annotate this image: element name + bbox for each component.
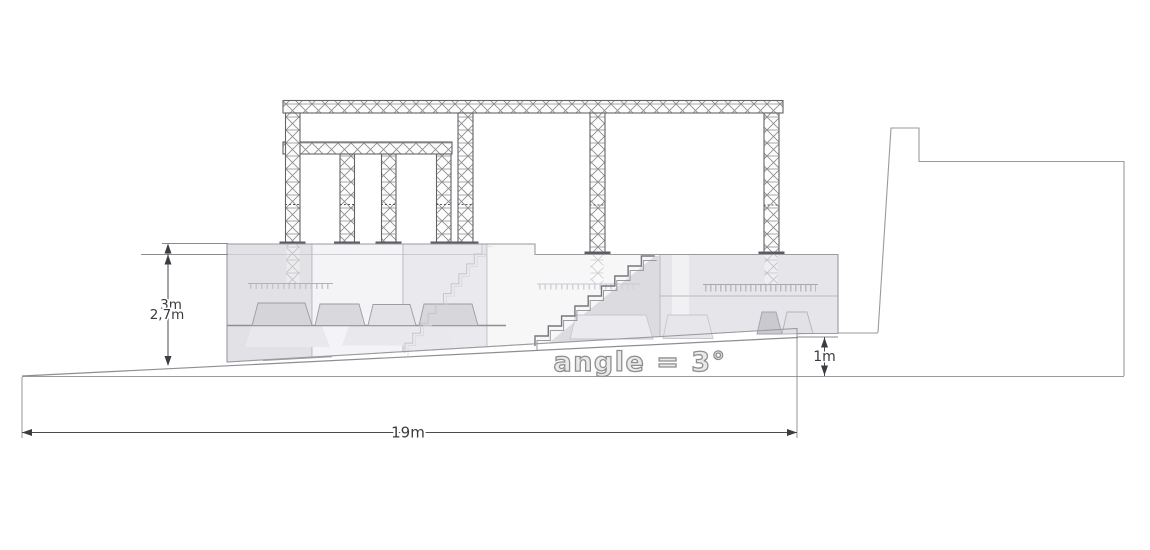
dimension-height: 3m 2,7m xyxy=(141,244,228,367)
angle-label: angle = 3° xyxy=(553,347,726,378)
arrow-up-icon xyxy=(165,255,172,265)
truss-column xyxy=(382,154,397,244)
arrow-down-icon xyxy=(165,356,172,366)
lower-truss xyxy=(283,142,452,154)
truss-column xyxy=(340,154,355,244)
arrow-down-icon xyxy=(821,366,828,376)
elevation-drawing-canvas: 3m 2,7m 1m 19m angle = 3° xyxy=(0,0,1150,550)
label-step-height: 1m xyxy=(813,349,836,365)
elevation-drawing: 3m 2,7m 1m 19m angle = 3° xyxy=(0,0,1150,550)
arrow-left-icon xyxy=(22,429,32,436)
label-total-length: 19m xyxy=(391,424,425,442)
truss-column xyxy=(286,113,301,244)
arrow-up-icon xyxy=(821,338,828,348)
stage-platform xyxy=(227,244,838,362)
dimension-step: 1m xyxy=(797,337,838,376)
roof-truss xyxy=(283,101,783,114)
label-stage-height: 2,7m xyxy=(150,307,185,323)
truss-column xyxy=(458,113,473,244)
truss-splice-joints xyxy=(285,205,780,206)
arrow-up-icon xyxy=(165,244,172,254)
truss-column xyxy=(590,113,605,254)
venue-wall xyxy=(878,128,1124,376)
truss-column xyxy=(764,113,779,254)
truss-rig xyxy=(280,101,785,255)
arrow-right-icon xyxy=(787,429,797,436)
truss-column xyxy=(437,154,452,244)
